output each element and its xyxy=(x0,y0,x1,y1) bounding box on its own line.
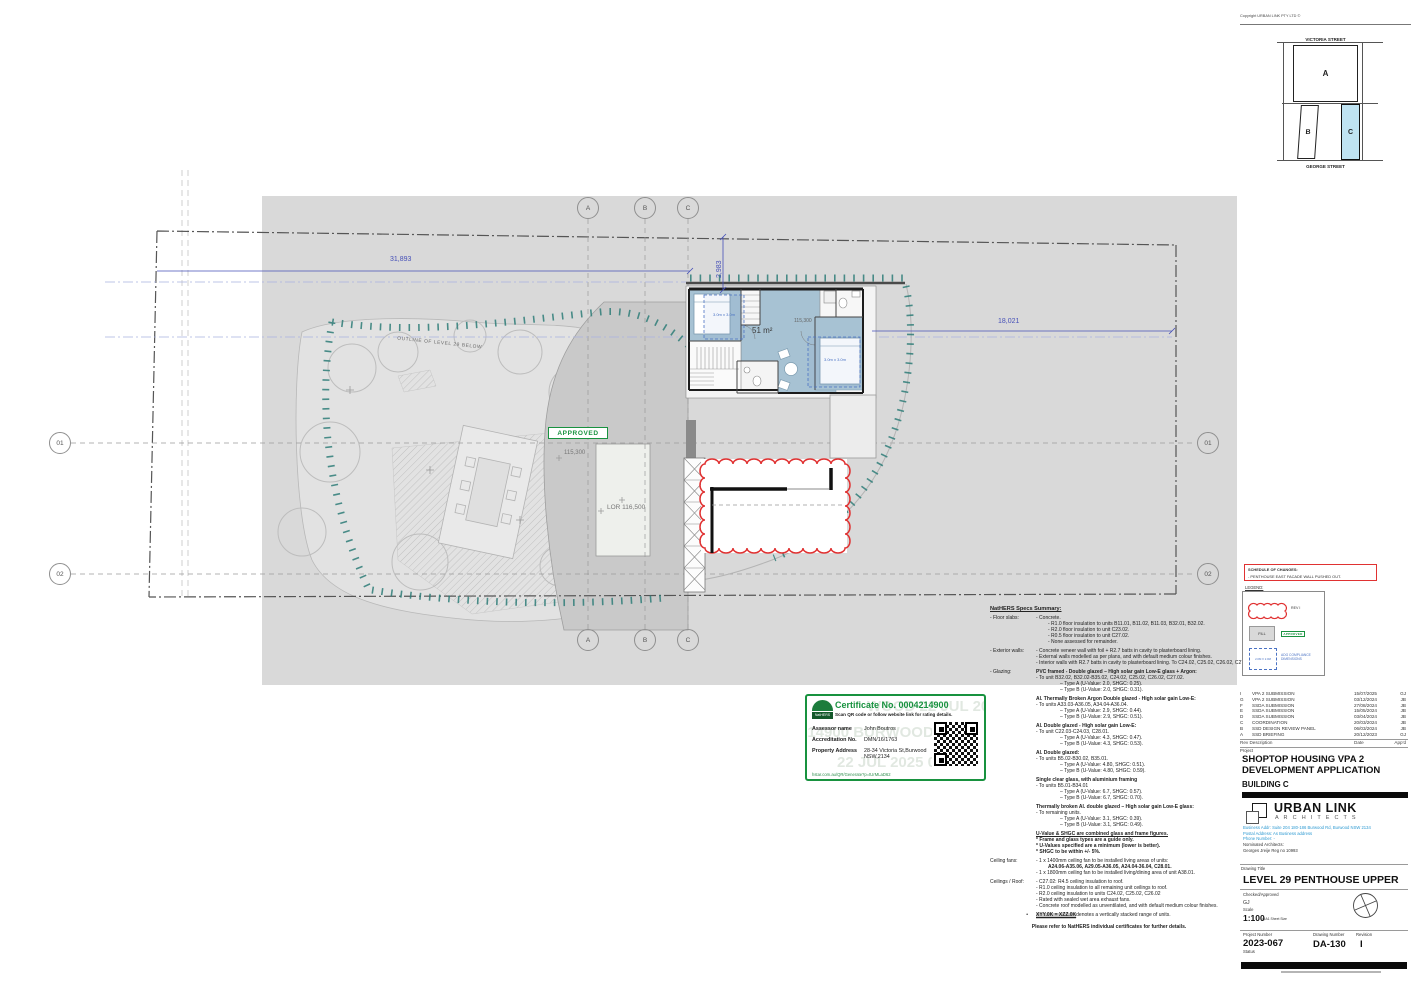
nominated-name: Georges Jreije Reg no 10993 xyxy=(1243,848,1298,853)
project-title-line2: DEVELOPMENT APPLICATION xyxy=(1242,765,1380,776)
unit-level-label: 115,300 xyxy=(794,318,812,324)
project-number: 2023-067 xyxy=(1243,938,1283,949)
rev-header-left: Rev Description xyxy=(1240,740,1354,746)
keyplan-block-b: B xyxy=(1297,105,1319,159)
dim-top: 31,893 xyxy=(390,256,411,263)
address-line3: Phone Number: - xyxy=(1243,836,1275,841)
approved-stamp: APPROVED xyxy=(548,427,608,439)
legend-adg-label: ADG COMPLIANCE DIMENSIONS xyxy=(1281,653,1315,661)
urban-link-logo-icon xyxy=(1246,803,1269,825)
project-label: Project xyxy=(1240,748,1253,753)
drawing-number: DA-130 xyxy=(1313,939,1346,950)
grid-bubble-02-left: 02 xyxy=(49,563,71,585)
file-path-line xyxy=(1281,971,1381,973)
accreditation-value: DMN/16/1763 xyxy=(864,737,930,743)
grid-bubble-c-bottom: C xyxy=(677,629,699,651)
legend-fill-swatch: FILL xyxy=(1249,626,1275,641)
drawing-title-label: Drawing Title xyxy=(1241,866,1265,871)
checked-label: Checked/Approved xyxy=(1243,892,1279,897)
lor-level-label: LOR 116,500 xyxy=(607,504,645,511)
titleblock-footer-bar xyxy=(1241,962,1407,969)
rev-header-appd: App'd xyxy=(1390,740,1406,746)
certificate-subtitle: Scan QR code or follow website link for … xyxy=(835,712,952,717)
key-plan: Copyright URBAN LINK PTY LTD © VICTORIA … xyxy=(1240,14,1411,176)
firm-name: URBAN LINK xyxy=(1274,801,1357,815)
certificate-number: Certificate No. 0004214900 xyxy=(835,700,949,710)
unit-area-label: 51 m² xyxy=(752,326,772,335)
legend-title: LEGEND: xyxy=(1245,585,1263,590)
scale-label: Scale xyxy=(1243,907,1253,912)
revision-row: ASSD BRIEFING 20/12/2023GJ xyxy=(1240,732,1406,738)
dim-right: 18,021 xyxy=(998,318,1019,325)
adg-label-right: 3.0m x 3.0m xyxy=(810,357,860,362)
schedule-title: SCHEDULE OF CHANGES: xyxy=(1248,567,1373,572)
revision-cloud xyxy=(700,459,850,553)
copyright: Copyright URBAN LINK PTY LTD © xyxy=(1240,14,1300,18)
address-line2: Postal Address: As Business address xyxy=(1243,831,1312,836)
table xyxy=(785,363,798,376)
grid-bubble-a-top: A xyxy=(577,197,599,219)
schedule-item: - PENTHOUSE EAST FACADE WALL PUSHED OUT. xyxy=(1248,574,1373,579)
drawing-number-label: Drawing Number xyxy=(1313,932,1344,937)
status-label: Status xyxy=(1243,949,1255,954)
drawing-title: LEVEL 29 PENTHOUSE UPPER xyxy=(1243,874,1399,886)
nathers-logo: NatHERS xyxy=(812,700,833,720)
terrace-level-label: 115,300 xyxy=(564,450,585,456)
specs-lines: - Floor slabs:- Concrete. - R1.0 floor i… xyxy=(990,616,1228,919)
project-title-line1: SHOPTOP HOUSING VPA 2 xyxy=(1242,754,1364,765)
legend-rev-cloud xyxy=(1247,600,1287,622)
legend-adg-box: 2.0M X 2.0M xyxy=(1249,648,1277,670)
grid-bubble-01-right: 01 xyxy=(1197,432,1219,454)
revision-value: I xyxy=(1360,939,1363,950)
grid-bubble-b-bottom: B xyxy=(634,629,656,651)
property-value: 28-34 Victoria St,Burwood NSW,2134 xyxy=(864,748,930,760)
nathers-certificate: WOOD 22 JUL 2025 214900 BURWOOD 22 JUL 2… xyxy=(805,694,986,781)
certificate-link: hstar.com.au/QR/Generate?p=tUrMLaD62 xyxy=(812,772,891,777)
rev-header-date: Date xyxy=(1354,740,1390,746)
specs-footer: Please refer to NatHERS individual certi… xyxy=(990,924,1228,930)
adg-label-left: 3.0m x 3.0m xyxy=(702,312,746,317)
grid-bubble-01-left: 01 xyxy=(49,432,71,454)
keyplan-block-a: A xyxy=(1293,45,1358,102)
building-label: BUILDING C xyxy=(1242,780,1289,789)
north-arrow-icon xyxy=(1352,892,1379,919)
legend-box: REV I FILL APPROVED 2.0M X 2.0M ADG COMP… xyxy=(1242,591,1325,676)
keyplan-block-c-highlight: C xyxy=(1341,104,1360,160)
assessor-value: John Boutros xyxy=(864,726,930,732)
property-label: Property Address xyxy=(812,748,864,760)
nominated-label: Nominated Architects: xyxy=(1243,842,1284,847)
scale-note: @A1 Sheet Size xyxy=(1262,917,1287,921)
street-bottom-label: GEORGE STREET xyxy=(1240,164,1411,169)
grid-bubble-c-top: C xyxy=(677,197,699,219)
address-line1: Business Addr: Suite 204 180-186 Burwood… xyxy=(1243,825,1371,830)
grid-bubble-b-top: B xyxy=(634,197,656,219)
schedule-of-changes: SCHEDULE OF CHANGES: - PENTHOUSE EAST FA… xyxy=(1244,564,1377,581)
project-number-label: Project Number xyxy=(1243,932,1272,937)
specs-line: •XYY.0K = XZZ.0K denotes a vertically st… xyxy=(990,913,1228,919)
drawing-sheet: OUTLINE OF LEVEL 29 BELOW APPROVED 115,3… xyxy=(0,0,1411,996)
revision-table: IVPA 2 SUBMISSION 15/07/2025GJ GVPA 2 SU… xyxy=(1240,691,1406,737)
dim-offset: 2,983 xyxy=(716,260,723,278)
firm-sub: A R C H I T E C T S xyxy=(1275,815,1357,821)
specs-title: NatHERS Specs Summary: xyxy=(990,606,1228,612)
assessor-label: Assessor name xyxy=(812,726,864,732)
grid-bubble-02-right: 02 xyxy=(1197,563,1219,585)
revision-label: Revision xyxy=(1356,932,1372,937)
accreditation-label: Accreditation No. xyxy=(812,737,864,743)
checked-value: GJ xyxy=(1243,900,1250,906)
legend-approved-stamp: APPROVED xyxy=(1281,631,1305,637)
grid-bubble-a-bottom: A xyxy=(577,629,599,651)
qr-code xyxy=(934,722,978,766)
nathers-specs-summary: NatHERS Specs Summary: - Floor slabs:- C… xyxy=(990,606,1228,930)
legend-rev-label: REV I xyxy=(1291,606,1300,610)
